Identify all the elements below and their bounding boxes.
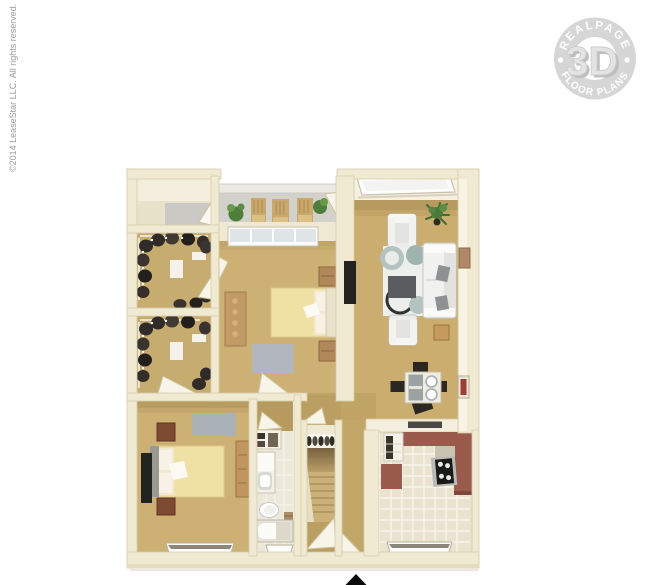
svg-text:©2014 LeaseStar LLC. All right: ©2014 LeaseStar LLC. All rights reserved… [8, 4, 18, 172]
svg-text:3D: 3D [566, 38, 618, 84]
